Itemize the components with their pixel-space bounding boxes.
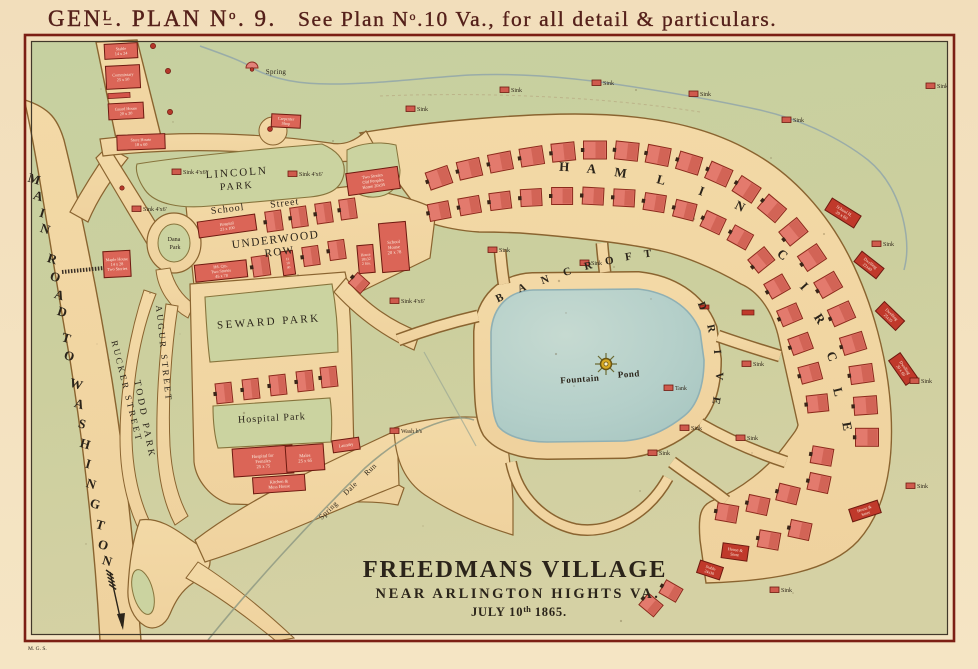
svg-text:Sink: Sink [499,248,510,254]
svg-text:Sink: Sink [937,84,948,90]
svg-text:Sink 4'x6': Sink 4'x6' [183,170,207,176]
svg-text:M. G. S.: M. G. S. [28,646,47,652]
svg-text:Wash h's: Wash h's [401,429,423,435]
svg-text:18 x 60: 18 x 60 [135,142,148,147]
svg-text:PARK: PARK [220,180,254,193]
svg-text:V: V [713,372,726,381]
svg-text:See Plan No.10 Va., for all de: See Plan No.10 Va., for all detail & par… [298,7,777,31]
svg-text:Two Stories: Two Stories [107,266,128,272]
svg-text:Sink: Sink [591,261,602,267]
svg-text:FREEDMANS VILLAGE: FREEDMANS VILLAGE [363,556,667,583]
svg-text:Sink: Sink [921,379,932,385]
svg-text:M: M [613,164,627,181]
svg-text:Sink: Sink [917,484,928,490]
svg-text:Shop: Shop [281,121,290,126]
svg-text:H: H [559,159,570,175]
svg-text:14 x 24: 14 x 24 [115,51,129,57]
svg-text:Tank: Tank [675,386,687,392]
svg-text:JULY 10th 1865.: JULY 10th 1865. [471,604,567,619]
svg-text:Sink: Sink [747,436,758,442]
svg-text:Sink 4'x6': Sink 4'x6' [143,207,167,213]
svg-text:Sink 4'x6': Sink 4'x6' [299,172,323,178]
svg-text:Sink: Sink [753,362,764,368]
svg-text:Sink: Sink [781,588,792,594]
svg-text:Sink: Sink [883,242,894,248]
svg-text:Pond: Pond [617,368,640,380]
svg-text:Park: Park [170,245,181,251]
svg-text:25 x 75: 25 x 75 [256,463,271,469]
svg-text:Sink: Sink [793,118,804,124]
svg-text:Sink: Sink [511,88,522,94]
svg-text:Sink 4'x6': Sink 4'x6' [401,299,425,305]
svg-text:I: I [711,349,723,354]
svg-text:Sink: Sink [603,81,614,87]
svg-text:25 x 50: 25 x 50 [117,77,130,83]
svg-text:Sink: Sink [417,107,428,113]
svg-text:Sink: Sink [691,426,702,432]
svg-text:GENL_. PLANNo. 9.: GENL_. PLANNo. 9. [48,6,277,31]
svg-text:Dana: Dana [168,237,181,243]
svg-text:Sink: Sink [659,451,670,457]
svg-text:25 x 65: 25 x 65 [298,458,313,464]
svg-text:Spring: Spring [266,68,287,76]
svg-text:20 x 30: 20 x 30 [120,111,133,117]
svg-text:Sink: Sink [700,92,711,98]
svg-text:NEAR ARLINGTON HIGHTS VA.: NEAR ARLINGTON HIGHTS VA. [376,586,661,602]
svg-text:2 Sto.: 2 Sto. [362,261,371,266]
